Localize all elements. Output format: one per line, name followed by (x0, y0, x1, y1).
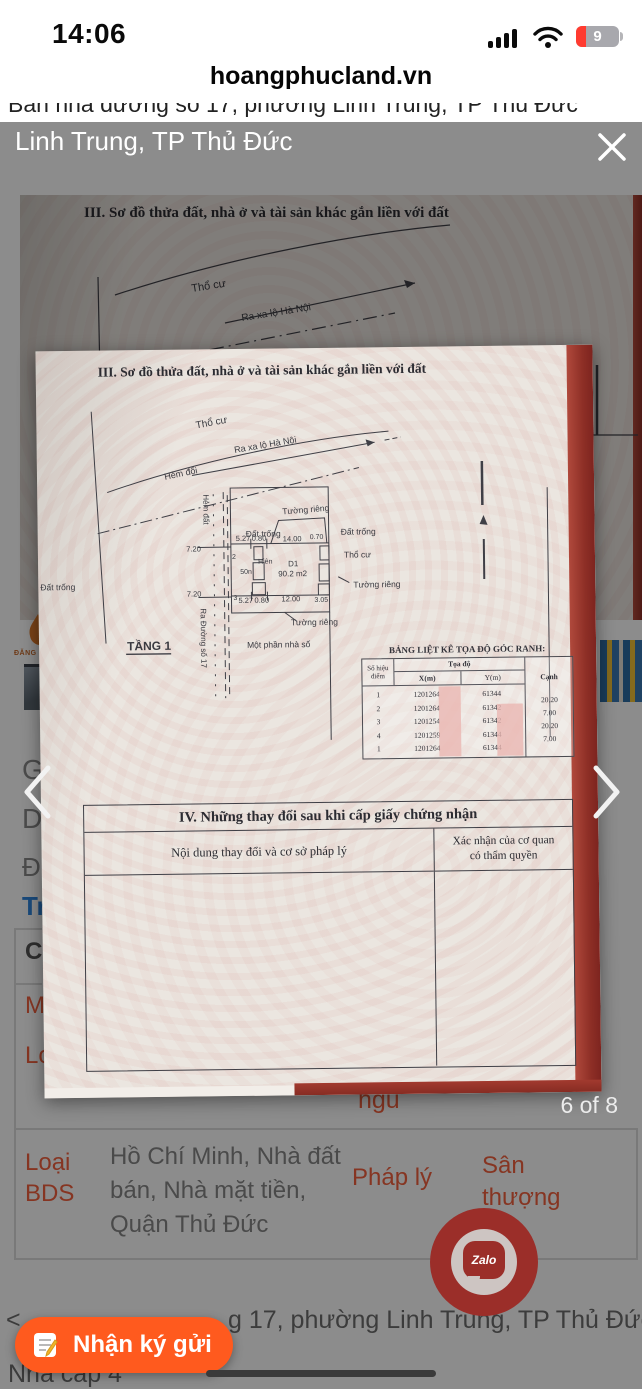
next-arrow-icon[interactable] (586, 762, 626, 822)
prev-arrow-icon[interactable] (18, 762, 58, 822)
edge-values: 20.207.0020.207.00 (526, 695, 573, 744)
diagram-label: 5.27 (238, 596, 253, 605)
diagram-label: Ra xa lộ Hà Nội (233, 434, 297, 454)
document-title: III. Sơ đồ thửa đất, nhà ở và tài sản kh… (98, 361, 427, 381)
status-time: 14:06 (52, 18, 126, 50)
col-x: X(m) (394, 671, 461, 685)
diagram-label: Hẻm đất (201, 494, 210, 525)
section4-col-right: Xác nhận của cơ quan có thẩm quyền (434, 827, 573, 872)
diagram-label: 90.2 m2 (278, 569, 308, 578)
diagram-label: 3.05 (314, 597, 328, 604)
diagram-label: 0.70 (310, 534, 324, 541)
wifi-icon (532, 26, 564, 49)
diagram-label: Tường riêng (353, 579, 401, 590)
diagram-label: Tường riêng (291, 617, 339, 628)
diagram-label: Thổ cư (344, 549, 371, 559)
memo-icon (31, 1330, 61, 1360)
diagram-label: Một phần nhà số (247, 639, 311, 650)
section4-body-left (85, 872, 436, 1070)
diagram-label: Hiên (258, 559, 273, 566)
edge-value: 7.00 (526, 734, 573, 744)
zalo-icon: Zalo (463, 1241, 505, 1279)
zalo-icon-text: Zalo (472, 1253, 497, 1267)
diagram-label: 0.80 (252, 534, 267, 543)
mobile-screen: { "status_bar": { "time": "14:06", "batt… (0, 0, 642, 1389)
coordinate-table: BẢNG LIỆT KÊ TỌA ĐỘ GÓC RANH: Số hiệu đi… (361, 643, 574, 759)
zalo-button[interactable]: Zalo (430, 1208, 538, 1316)
browser-chrome: 14:06 9 hoangphucland.vn (0, 0, 642, 103)
section4-col-left: Nội dung thay đổi và cơ sở pháp lý (84, 829, 433, 876)
diagram-label: Đất trống (341, 526, 376, 536)
edge-value: 7.00 (526, 708, 573, 718)
battery-icon: 9 (576, 26, 619, 47)
edge-value: 20.20 (526, 695, 573, 705)
col-y: Y(m) (461, 670, 525, 684)
diagram-label: 7.20 (187, 589, 202, 598)
battery-nub (620, 32, 623, 41)
edge-value: 20.20 (526, 721, 573, 731)
coordinate-table-title: BẢNG LIỆT KÊ TỌA ĐỘ GÓC RANH: (361, 643, 573, 656)
section4-table: IV. Những thay đổi sau khi cấp giấy chứn… (83, 799, 576, 1072)
diagram-label: D1 (288, 559, 299, 568)
diagram-label: 2 (232, 554, 236, 561)
image-counter: 6 of 8 (500, 1092, 618, 1119)
consign-button-label: Nhận ký gửi (73, 1331, 212, 1359)
redaction-box-x (439, 686, 462, 756)
diagram-label: Tường riêng (282, 503, 330, 517)
diagram-label: 3 (233, 595, 237, 602)
diagram-label: Đất trống (40, 582, 75, 592)
redaction-box-y (497, 704, 524, 756)
home-indicator (206, 1370, 436, 1377)
diagram-label: 14.00 (283, 534, 302, 543)
col-edge: Cạnh (526, 672, 573, 682)
col-point: Số hiệu điểm (362, 659, 394, 685)
diagram-label: 0.80 (254, 596, 269, 605)
diagram-label: Thổ cư (195, 414, 229, 432)
diagram-label: 5.27 (236, 534, 251, 543)
signal-icon (488, 28, 521, 48)
diagram-label: TẦNG 1 (127, 638, 172, 654)
section4-body-right (435, 870, 575, 1066)
battery-percent-text: 9 (576, 28, 619, 45)
close-icon[interactable] (595, 130, 629, 164)
lightbox-image[interactable]: III. Sơ đồ thửa đất, nhà ở và tài sản kh… (35, 345, 601, 1099)
diagram-label: 7.20 (186, 544, 201, 553)
consign-button[interactable]: Nhận ký gửi (15, 1317, 233, 1373)
diagram-label: Hẻm đổi (163, 465, 198, 482)
diagram-label: 50n (240, 569, 252, 576)
diagram-label: Ra Đường số 17 (199, 608, 209, 668)
diagram-label: 12.00 (281, 594, 300, 603)
lightbox-caption: Linh Trung, TP Thủ Đức (15, 126, 435, 157)
address-bar[interactable]: hoangphucland.vn (0, 62, 642, 91)
